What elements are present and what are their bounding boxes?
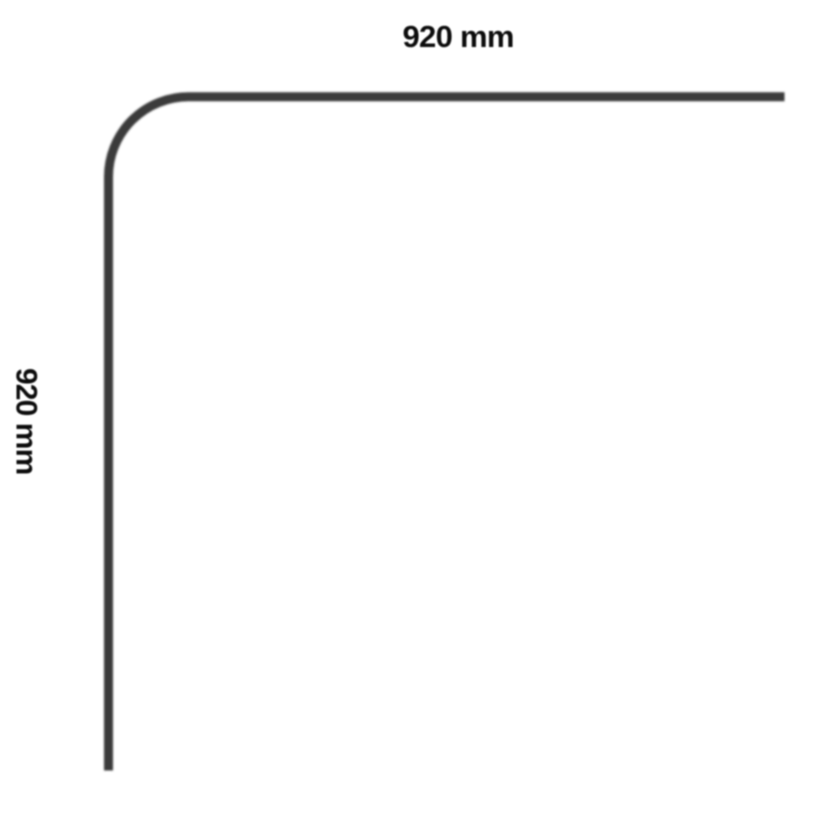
svg-text:920 mm: 920 mm <box>10 368 43 474</box>
svg-text:920 mm: 920 mm <box>403 19 514 54</box>
